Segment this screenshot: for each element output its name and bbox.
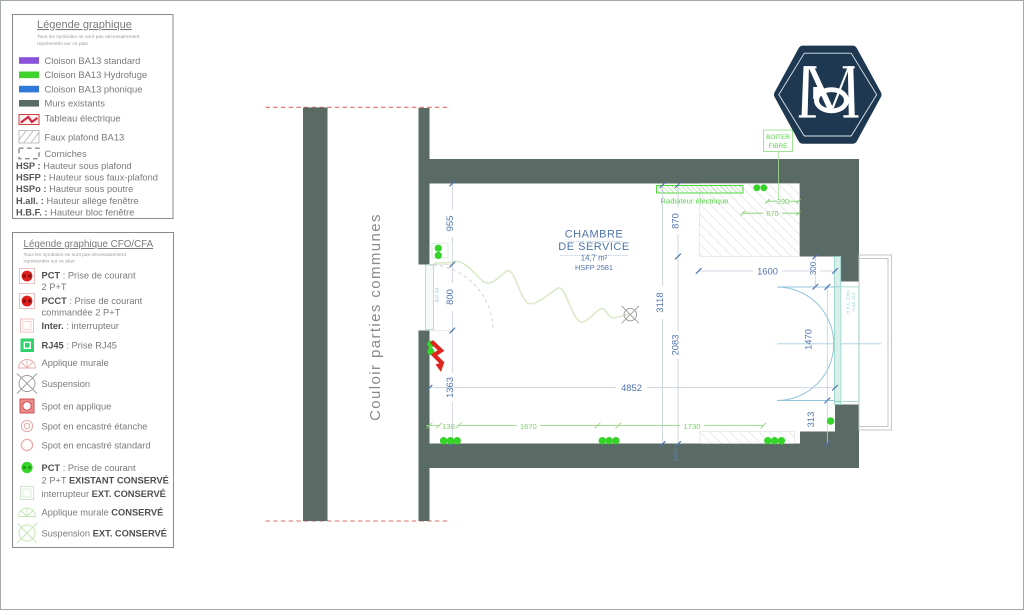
svg-text:2083: 2083 <box>670 335 681 356</box>
svg-text:Légende graphique: Légende graphique <box>37 19 132 31</box>
svg-text:Spot en encastré étanche: Spot en encastré étanche <box>42 421 148 431</box>
svg-text:670: 670 <box>766 209 778 218</box>
svg-text:800: 800 <box>444 289 455 305</box>
svg-text:FIBRE: FIBRE <box>769 143 788 150</box>
svg-text:300: 300 <box>809 261 818 275</box>
svg-text:interrupteur EXT. CONSERVÉ: interrupteur EXT. CONSERVÉ <box>42 489 166 499</box>
svg-text:Cloison BA13 Hydrofuge: Cloison BA13 Hydrofuge <box>45 69 148 80</box>
svg-text:BOITER: BOITER <box>766 134 790 141</box>
svg-text:RJ45 : Prise RJ45: RJ45 : Prise RJ45 <box>42 340 117 350</box>
svg-text:1730: 1730 <box>684 422 701 431</box>
svg-text:HSP : Hauteur sous plafond: HSP : Hauteur sous plafond <box>16 161 132 171</box>
svg-text:Suspension: Suspension <box>42 379 91 389</box>
svg-text:Tableau électrique: Tableau électrique <box>45 113 121 124</box>
svg-text:Faux plafond BA13: Faux plafond BA13 <box>45 131 125 142</box>
svg-text:B.P. 93: B.P. 93 <box>435 287 440 302</box>
svg-text:14,7 m²: 14,7 m² <box>581 254 608 263</box>
svg-text:Tous les symboles ne sont pas: Tous les symboles ne sont pas nécessaire… <box>24 252 127 258</box>
svg-text:955: 955 <box>444 216 455 232</box>
svg-text:Corniches: Corniches <box>45 148 88 159</box>
svg-text:Applique murale: Applique murale <box>42 358 109 368</box>
svg-text:Inter. : interrupteur: Inter. : interrupteur <box>42 321 120 331</box>
svg-text:Tous les symboles ne sont pas: Tous les symboles ne sont pas nécessaire… <box>37 34 140 40</box>
svg-text:1600: 1600 <box>757 265 778 276</box>
svg-text:PCT : Prise de courant: PCT : Prise de courant <box>42 271 136 281</box>
svg-text:HSFP 2581: HSFP 2581 <box>575 263 613 272</box>
svg-text:Suspension EXT. CONSERVÉ: Suspension EXT. CONSERVÉ <box>42 528 167 538</box>
svg-text:130: 130 <box>442 422 455 431</box>
svg-text:Cloison BA13 phonique: Cloison BA13 phonique <box>45 83 143 94</box>
svg-text:PCT : Prise de courant: PCT : Prise de courant <box>42 463 136 473</box>
svg-text:4852: 4852 <box>621 382 642 393</box>
svg-text:DE SERVICE: DE SERVICE <box>558 241 629 253</box>
svg-text:313: 313 <box>805 412 816 428</box>
svg-text:2 P+T: 2 P+T <box>42 282 67 292</box>
svg-text:PCCT : Prise de courant: PCCT : Prise de courant <box>42 296 143 306</box>
svg-text:H.B.F. 2080: H.B.F. 2080 <box>846 290 851 314</box>
svg-text:Murs existants: Murs existants <box>45 98 106 109</box>
svg-text:Cloison BA13 standard: Cloison BA13 standard <box>45 55 141 66</box>
svg-text:2 P+T EXISTANT CONSERVÉ: 2 P+T EXISTANT CONSERVÉ <box>42 475 169 485</box>
svg-text:CHAMBRE: CHAMBRE <box>565 229 624 241</box>
svg-text:Applique murale CONSERVÉ: Applique murale CONSERVÉ <box>42 507 164 517</box>
svg-text:H.all. 110: H.all. 110 <box>851 292 856 312</box>
svg-text:Spot en applique: Spot en applique <box>42 401 112 411</box>
svg-text:Couloir parties communes: Couloir parties communes <box>367 213 384 421</box>
svg-text:1455: 1455 <box>673 447 680 462</box>
svg-text:3118: 3118 <box>654 292 665 312</box>
svg-text:représentés sur ce plan: représentés sur ce plan <box>24 259 75 265</box>
svg-text:Légende graphique CFO/CFA: Légende graphique CFO/CFA <box>24 239 154 250</box>
svg-text:H.B.F. : Hauteur bloc fenêtre: H.B.F. : Hauteur bloc fenêtre <box>16 208 134 218</box>
svg-text:1470: 1470 <box>803 329 814 350</box>
svg-text:HSFP : Hauteur sous faux-plafo: HSFP : Hauteur sous faux-plafond <box>16 172 158 182</box>
svg-text:Spot en encastré standard: Spot en encastré standard <box>42 440 151 450</box>
svg-text:Radiateur électrique: Radiateur électrique <box>661 197 729 206</box>
svg-text:commandée 2 P+T: commandée 2 P+T <box>42 307 121 317</box>
svg-text:représentés sur ce plan: représentés sur ce plan <box>37 41 88 47</box>
svg-text:1670: 1670 <box>520 422 537 431</box>
svg-text:870: 870 <box>670 213 681 229</box>
svg-text:H.all. : Hauteur allège fenêtr: H.all. : Hauteur allège fenêtre <box>16 196 139 206</box>
svg-text:HSPo : Hauteur sous poutre: HSPo : Hauteur sous poutre <box>16 184 133 194</box>
